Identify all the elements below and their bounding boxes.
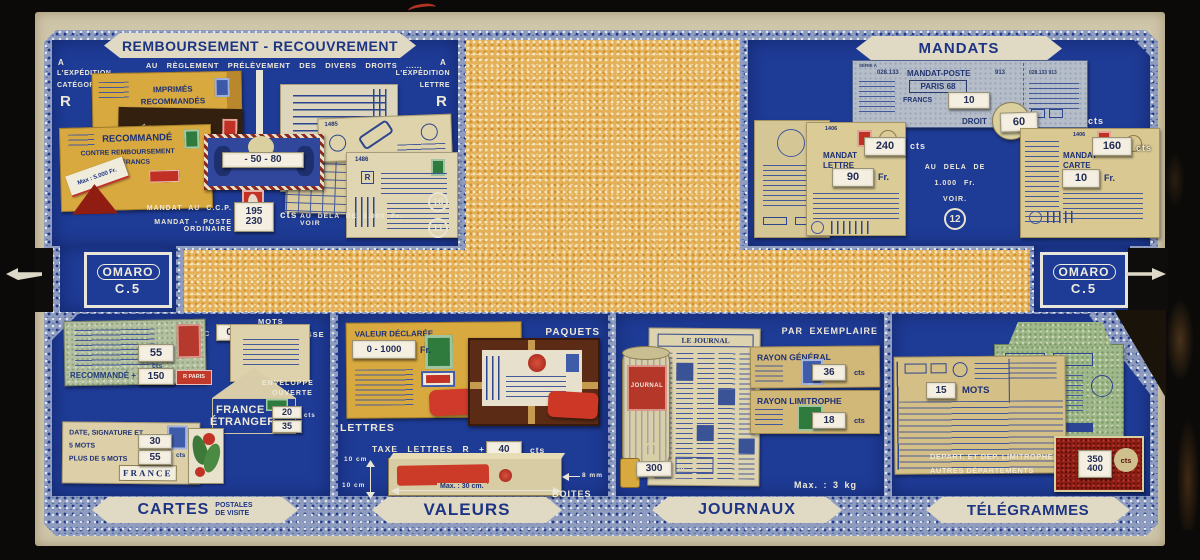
ref-12-badge: 12	[944, 208, 966, 230]
ccp-rate-window: 195 230	[234, 202, 274, 232]
mandat-poste-ordinaire-label: MANDAT - POSTE ORDINAIRE	[106, 219, 232, 233]
recommande-card: RECOMMANDÉ CONTRE REMBOURSEMENT FRANCS M…	[59, 124, 213, 212]
francs-label: FRANCS	[903, 97, 932, 104]
au-dela-note-1: AU DELA DE	[918, 164, 992, 171]
cts-label: cts	[854, 368, 865, 377]
cts-label: cts	[854, 416, 865, 425]
recommande-plus-label: RECOMMANDÉ +	[70, 371, 136, 380]
carte-55-window: 55	[138, 344, 174, 362]
omaro-model: C.5	[115, 281, 141, 296]
etranger-label: ÉTRANGER	[210, 416, 276, 428]
form-slanted-box	[358, 119, 395, 150]
red-blue-label-icon	[421, 371, 455, 387]
france-20-window: 20	[272, 406, 302, 419]
cinq-mots-label: 5 MOTS	[69, 442, 95, 449]
form-1406-number: 1406	[1073, 132, 1085, 138]
rayon-general-window: 36	[812, 364, 846, 381]
stub-number: 028.133 913	[1029, 70, 1057, 76]
form-1486-number: 1486	[355, 157, 368, 163]
slide-window-top	[466, 40, 740, 252]
card-lines	[755, 365, 783, 385]
newspaper-title: LE JOURNAL	[681, 336, 729, 345]
flower-bloom	[203, 433, 215, 445]
weight-handle-icon	[645, 442, 657, 452]
telegrammes-footer-banner: TÉLÉGRAMMES	[926, 497, 1130, 523]
cts-label: cts	[1136, 143, 1152, 153]
form-circle	[1029, 211, 1042, 224]
autres-departements-label: AUTRES DÉPARTEMENTS	[930, 466, 1034, 475]
cts-label: cts	[1121, 456, 1132, 465]
form-circle	[811, 221, 824, 234]
contre-remboursement-label: CONTRE REMBOURSEMENT	[63, 148, 193, 158]
boites-label: BOITES	[552, 489, 592, 499]
box-top-face	[389, 453, 565, 459]
news-photo	[697, 425, 714, 441]
rayon-limitrophe-window: 18	[812, 412, 846, 429]
header-box	[931, 363, 947, 373]
mandats-title: MANDATS	[919, 40, 1000, 57]
form-bars	[1047, 211, 1077, 223]
roll-top-ellipse	[622, 346, 670, 360]
imprimes-label-2: RECOMMANDÉS	[129, 96, 217, 107]
red-stamp-block-icon	[177, 324, 202, 358]
recommande-label: RECOMMANDÉ	[90, 132, 184, 145]
mandat-poste-label: MANDAT-POSTE	[907, 69, 970, 78]
cts-label: cts	[304, 413, 316, 419]
blue-stamp-icon	[215, 78, 230, 97]
cts-label: cts	[176, 452, 185, 459]
etranger-35-window: 35	[272, 420, 302, 433]
mandat-lettre-label-1: MANDAT	[823, 151, 857, 160]
max-30cm-label: Max. : 30 cm.	[437, 483, 487, 490]
form-circle	[421, 123, 439, 141]
valeur-declaree-label: VALEUR DÉCLARÉE	[355, 329, 434, 339]
poids-window: 300	[636, 461, 672, 478]
telegramme-rate-window: 350 400	[1078, 450, 1112, 478]
header-lines	[975, 362, 1057, 379]
card-bars	[486, 356, 500, 400]
stub-box	[1049, 109, 1063, 118]
paquets-label: PAQUETS	[530, 327, 600, 338]
remboursement-title: REMBOURSEMENT - RECOUVREMENT	[122, 38, 398, 54]
cartes-footer-banner: CARTES POSTALES DE VISITE	[92, 497, 298, 523]
mandat-ccp-label: MANDAT AU C.C.P.	[128, 205, 232, 212]
valeur-range: 0 - 1000	[367, 345, 402, 355]
carte-fr-window: 10	[1062, 169, 1100, 188]
form-1485-number: 1485	[324, 122, 338, 128]
au-dela-note-3: VOIR.	[918, 196, 992, 203]
ouverte-label: OUVERTE	[272, 390, 313, 397]
right-r-label: R	[436, 93, 448, 110]
card-lines	[755, 409, 783, 429]
flower-bloom	[195, 467, 205, 477]
enveloppe-label: ENVELOPPE	[262, 380, 314, 387]
ccp-rate-2: 230	[246, 217, 263, 227]
header-circle	[953, 362, 968, 377]
green-form-circle	[1091, 375, 1113, 397]
parcel	[468, 338, 600, 426]
stamp-rate-window: - 50 - 80	[222, 152, 304, 168]
form-bars	[373, 89, 389, 117]
form-lines	[813, 193, 899, 219]
mandat-francs-window: 10	[948, 92, 990, 109]
omaro-badge-left: OMARO C.5	[84, 252, 172, 308]
mandats-title-banner: MANDATS	[856, 36, 1062, 61]
dim-10cm-top-label: 10 cm	[344, 456, 367, 463]
label-inner	[426, 375, 450, 383]
plus-de-5-mots-label: PLUS DE 5 MOTS	[69, 455, 127, 463]
card-lines	[243, 339, 299, 369]
address-lines	[99, 82, 129, 99]
slide-notch-left	[35, 248, 53, 312]
omaro-badge-right: OMARO C.5	[1040, 252, 1128, 308]
droit-label: DROIT	[962, 117, 987, 126]
max-3kg-label: Max. : 3 kg	[794, 480, 857, 490]
ref-10-badge: 10	[428, 192, 448, 212]
cts-circle: cts	[1114, 448, 1138, 472]
telegram-form-green-top	[1008, 322, 1112, 346]
registered-r-box: R	[361, 171, 374, 184]
open-envelope-card	[230, 324, 310, 382]
stamp-frame: - 50 - 80	[204, 134, 324, 190]
carte-150-window: 150	[138, 368, 174, 385]
wax-seal-icon	[528, 354, 546, 372]
valeurs-footer: VALEURS	[424, 500, 511, 520]
right-expedition-label: L'EXPÉDITION	[386, 70, 450, 77]
arrowhead-left	[391, 487, 399, 495]
imprimes-label-1: IMPRIMÉS	[133, 84, 213, 94]
left-r-label: R	[60, 93, 72, 110]
box-diagram: Max. : 30 cm.	[388, 458, 562, 496]
stub-lines	[1029, 83, 1079, 109]
news-photo	[718, 389, 735, 405]
au-dela-note: AU DELA DE 1.000 Fr. VOIR	[300, 213, 418, 227]
right-a-label: A	[440, 58, 447, 67]
dim-arrow-line	[395, 490, 557, 491]
journaux-footer-banner: JOURNAUX	[652, 497, 842, 523]
fr-label: Fr.	[878, 172, 889, 182]
carte-cts-window: 160	[1092, 137, 1132, 156]
mots-window: 15	[926, 382, 956, 399]
card-circle	[777, 129, 805, 157]
mots5-30-window: 30	[138, 434, 172, 449]
blue-label-icon	[566, 354, 579, 372]
flower-stamp-icon	[188, 428, 224, 484]
journaux-footer: JOURNAUX	[698, 501, 796, 519]
plus5-55-window: 55	[138, 450, 172, 465]
ref-11-badge: 11	[428, 218, 448, 238]
roll-band-text: JOURNAL	[629, 383, 665, 389]
form-1406-number: 1406	[825, 126, 837, 132]
omaro-model: C.5	[1071, 281, 1097, 296]
lettres-label: LETTRES	[340, 422, 395, 434]
date-signature-label: DATE, SIGNATURE ET	[69, 429, 143, 437]
lettre-cts-window: 240	[864, 137, 906, 156]
dim-10cm-left-label: 10 cm	[342, 482, 365, 489]
omaro-logo: OMARO	[1053, 264, 1116, 280]
photo-backdrop: REMBOURSEMENT - RECOUVREMENT AU RÈGLEMEN…	[0, 0, 1200, 560]
valeurs-footer-banner: VALEURS	[372, 497, 562, 523]
r-paris-label: R PARIS	[176, 370, 212, 385]
news-col	[717, 353, 735, 479]
header-box	[905, 363, 927, 373]
serie-label: SÉRIE A	[859, 63, 877, 68]
dim-8mm-label: 8 mm	[582, 472, 603, 479]
red-label-icon	[149, 170, 179, 183]
omaro-logo: OMARO	[97, 264, 160, 280]
form-circle	[329, 134, 347, 152]
news-photo	[676, 363, 693, 381]
fr-label: Fr.	[420, 345, 431, 355]
slide-window-band	[184, 250, 1030, 312]
cartes-footer-main: CARTES	[138, 501, 210, 519]
cts-label: cts	[280, 210, 297, 221]
form-bars	[831, 221, 871, 234]
green-stamp-icon	[184, 129, 199, 148]
cartes-footer-sub1: POSTALES	[215, 502, 252, 510]
mots-label: MOTS	[962, 385, 989, 396]
gr-label: gr	[678, 463, 686, 472]
newspaper-title-box: LE JOURNAL	[658, 334, 754, 348]
wax-seal-icon	[499, 469, 512, 482]
card-box	[763, 217, 787, 225]
depart-limitrophes-label: DEPART. ET DEP. LIMITROPHES	[930, 452, 1059, 461]
par-exemplaire-label: PAR EXEMPLAIRE	[776, 326, 878, 336]
form-number-right: 913	[995, 70, 1005, 76]
france-label: FRANCE	[216, 404, 265, 416]
telegramme-rate-2: 400	[1087, 464, 1103, 474]
left-a-label: A	[58, 58, 65, 67]
fr-label: Fr.	[1104, 173, 1115, 183]
envelope-lines	[355, 369, 413, 406]
remboursement-subtitle: AU RÈGLEMENT PRÉLÈVEMENT DES DIVERS DROI…	[118, 61, 450, 70]
remboursement-title-banner: REMBOURSEMENT - RECOUVREMENT	[104, 33, 416, 58]
slide-notch-right	[1128, 248, 1168, 312]
form-lines	[859, 81, 895, 115]
cts-label: cts	[910, 141, 926, 151]
cts-label: cts	[1088, 116, 1104, 126]
wax-seal-blob-icon	[547, 391, 598, 420]
form-number-left: 028.133	[877, 70, 899, 76]
france-serif-label: FRANCE	[119, 465, 177, 482]
cartes-footer-sub2: DE VISITE	[215, 510, 252, 518]
lettre-fr-window: 90	[832, 168, 874, 187]
news-photo	[739, 439, 755, 453]
valeur-window: 0 - 1000	[352, 340, 416, 359]
telegramme-stamp: 350 400 cts	[1054, 436, 1144, 492]
au-dela-note-2: 1.000 Fr.	[918, 180, 992, 187]
telegrammes-footer: TÉLÉGRAMMES	[967, 502, 1089, 519]
roll-band-label: JOURNAL	[627, 365, 667, 411]
